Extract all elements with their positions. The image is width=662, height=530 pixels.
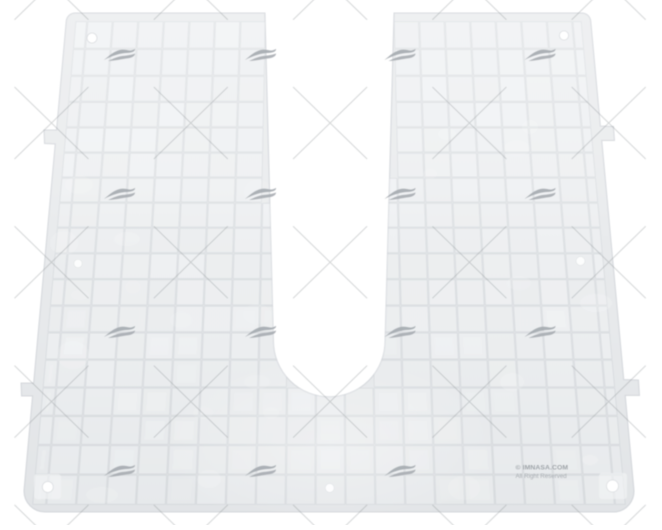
svg-text:All Right Reserved: All Right Reserved (516, 473, 568, 480)
svg-text:© IMNASA.COM: © IMNASA.COM (516, 464, 569, 472)
